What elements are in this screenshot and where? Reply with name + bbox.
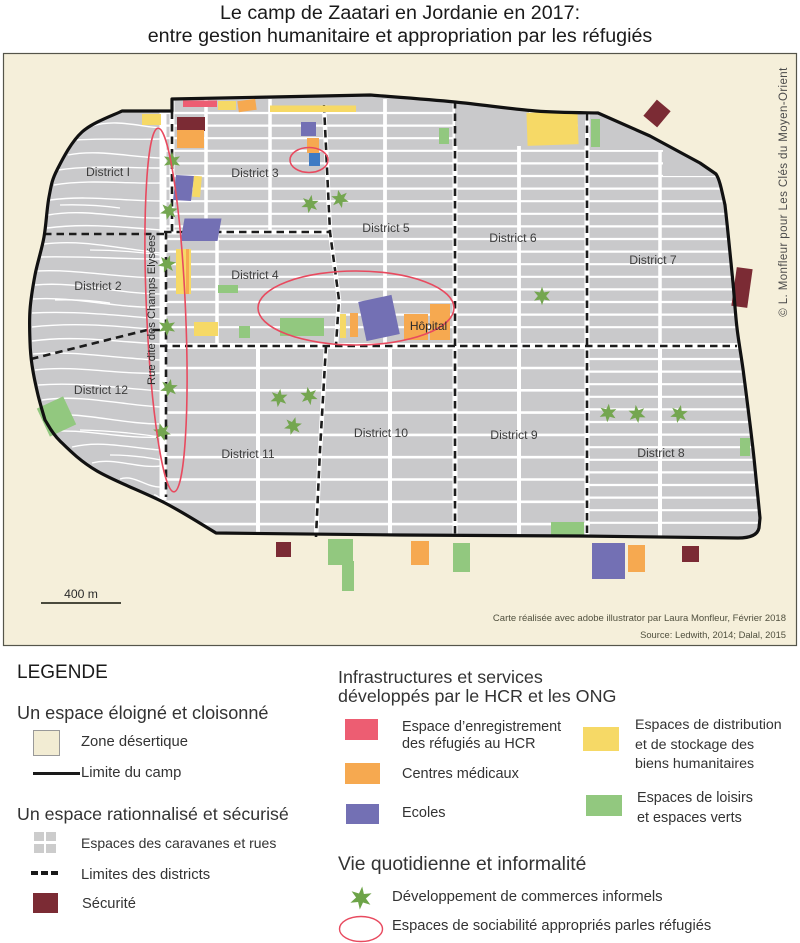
svg-text:Carte réalisée avec adobe illu: Carte réalisée avec adobe illustrator pa… (493, 613, 786, 624)
svg-text:District 7: District 7 (629, 253, 677, 267)
svg-text:District 3: District 3 (231, 166, 279, 180)
svg-text:District 5: District 5 (362, 221, 410, 235)
svg-text:© L. Monfleur pour Les Clés du: © L. Monfleur pour Les Clés du Moyen-Ori… (778, 67, 790, 317)
svg-text:District 6: District 6 (489, 231, 537, 245)
svg-text:District 2: District 2 (74, 279, 122, 293)
svg-text:Source: Ledwith, 2014; Dalal,: Source: Ledwith, 2014; Dalal, 2015 (640, 629, 786, 640)
svg-text:District 12: District 12 (74, 383, 128, 397)
svg-text:District 11: District 11 (221, 447, 274, 461)
svg-text:District 9: District 9 (490, 428, 538, 442)
svg-text:District 4: District 4 (231, 268, 279, 282)
svg-text:Rue dite des Champs Elysées: Rue dite des Champs Elysées (146, 235, 158, 385)
svg-text:District I: District I (86, 165, 130, 179)
svg-text:District 10: District 10 (354, 426, 408, 440)
svg-text:400 m: 400 m (64, 587, 98, 601)
svg-text:Hôpital: Hôpital (410, 319, 447, 333)
svg-text:District 8: District 8 (637, 446, 685, 460)
